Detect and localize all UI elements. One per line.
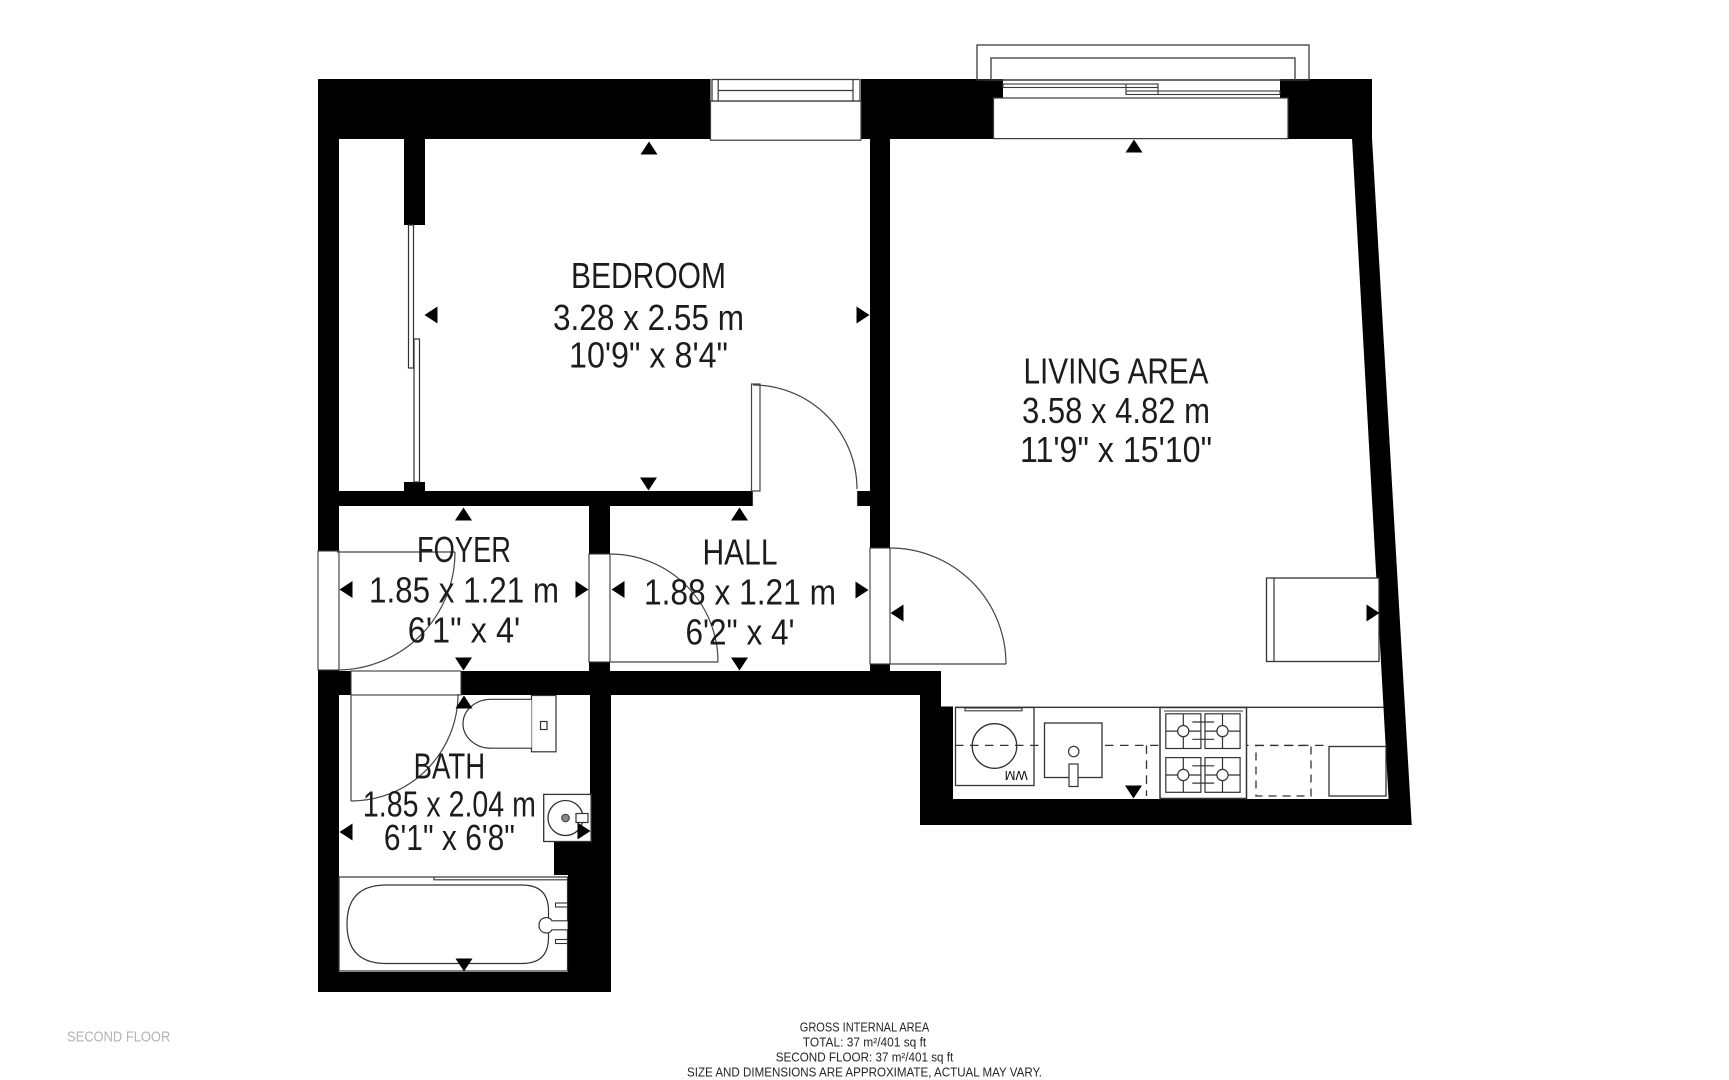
svg-text:SIZE AND DIMENSIONS ARE APPROX: SIZE AND DIMENSIONS ARE APPROXIMATE, ACT… xyxy=(687,1066,1042,1080)
svg-text:BEDROOM: BEDROOM xyxy=(571,255,726,296)
svg-text:1.88 x 1.21 m: 1.88 x 1.21 m xyxy=(644,572,836,613)
svg-text:HALL: HALL xyxy=(703,532,778,573)
svg-text:1.85 x 1.21 m: 1.85 x 1.21 m xyxy=(369,570,559,611)
svg-text:10'9" x 8'4": 10'9" x 8'4" xyxy=(569,335,728,376)
svg-text:TOTAL: 37 m²/401 sq ft: TOTAL: 37 m²/401 sq ft xyxy=(803,1036,927,1050)
svg-text:3.58 x 4.82 m: 3.58 x 4.82 m xyxy=(1022,390,1210,431)
svg-text:GROSS INTERNAL AREA: GROSS INTERNAL AREA xyxy=(800,1021,930,1035)
svg-text:FOYER: FOYER xyxy=(417,529,511,570)
svg-text:11'9" x 15'10": 11'9" x 15'10" xyxy=(1020,429,1212,470)
svg-text:BATH: BATH xyxy=(414,746,486,787)
svg-text:6'1" x 6'8": 6'1" x 6'8" xyxy=(384,817,515,858)
svg-text:LIVING AREA: LIVING AREA xyxy=(1024,351,1209,392)
svg-text:WM: WM xyxy=(1005,768,1028,783)
svg-text:6'2" x 4': 6'2" x 4' xyxy=(686,612,795,653)
svg-text:3.28 x 2.55 m: 3.28 x 2.55 m xyxy=(553,297,744,338)
svg-text:SECOND FLOOR: 37 m²/401 sq ft: SECOND FLOOR: 37 m²/401 sq ft xyxy=(776,1051,954,1065)
svg-text:SECOND FLOOR: SECOND FLOOR xyxy=(67,1029,170,1046)
svg-text:6'1" x 4': 6'1" x 4' xyxy=(408,610,521,651)
